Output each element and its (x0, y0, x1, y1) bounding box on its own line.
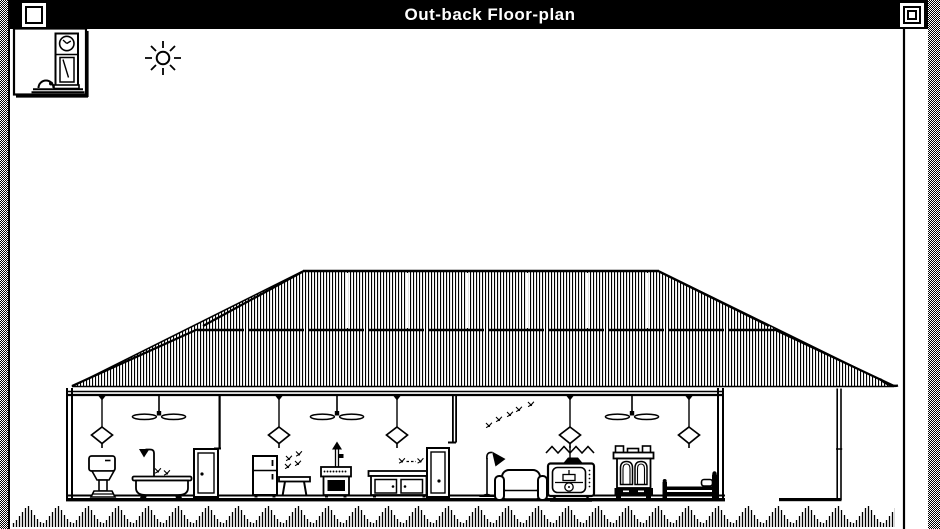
sink-cabinet (369, 458, 430, 497)
mouse-hole-icon (39, 81, 54, 89)
desktop-pattern: Out-back Floor-plan (0, 0, 940, 529)
zoom-box[interactable] (900, 3, 924, 27)
bedroom (614, 446, 718, 499)
living-room (479, 402, 594, 501)
close-box[interactable] (22, 3, 46, 27)
bathroom-kitchen-wall (219, 396, 221, 449)
fly-swarm (285, 451, 302, 468)
kitchen (253, 442, 449, 498)
lamp-shade (492, 452, 506, 467)
shower-head-icon (139, 449, 150, 458)
bathroom-door (194, 449, 218, 497)
grass (12, 504, 895, 528)
bathroom (89, 449, 218, 500)
fly-swarm (486, 402, 534, 428)
shower-pipe (146, 450, 155, 478)
left-wall (71, 388, 73, 501)
pillow (702, 480, 713, 487)
roof (72, 271, 898, 387)
fly-icon (155, 468, 161, 473)
ceiling-fixtures (92, 396, 700, 448)
couch (495, 470, 547, 500)
pendant-lamp (269, 396, 290, 448)
television (546, 446, 594, 501)
fly-icon (399, 458, 405, 463)
ceiling-fan (605, 396, 658, 420)
fridge (253, 456, 277, 498)
toilet (89, 456, 115, 497)
title-bar[interactable]: Out-back Floor-plan (10, 0, 928, 29)
kitchen-door (427, 448, 449, 497)
oven-door (328, 480, 346, 491)
side-table (279, 477, 310, 496)
left-wall (66, 388, 68, 501)
right-wall (717, 388, 719, 501)
door-knob (437, 479, 440, 482)
pendant-lamp (560, 396, 581, 448)
right-wall (722, 388, 724, 501)
bathtub (133, 449, 192, 500)
clock-picture (14, 29, 88, 98)
wood-stove (321, 442, 351, 498)
window-title: Out-back Floor-plan (405, 5, 576, 25)
pendant-lamp (679, 396, 700, 448)
document-window: Out-back Floor-plan (8, 0, 928, 529)
sun-icon (145, 41, 181, 75)
bed (663, 471, 718, 498)
pendant-lamp (387, 396, 408, 448)
floor-line (66, 498, 725, 501)
ceiling-fan (310, 396, 363, 420)
veranda-step (779, 498, 842, 501)
drawing-canvas[interactable] (10, 0, 930, 529)
pendant-lamp (92, 396, 113, 448)
door-knob (200, 472, 203, 475)
kitchen-living-wall (455, 396, 457, 443)
fly-icon (418, 458, 424, 463)
wardrobe (614, 446, 654, 498)
ceiling-fan (132, 396, 185, 420)
veranda-post (836, 389, 842, 501)
fly-icon (164, 470, 170, 475)
grandfather-clock-icon (54, 34, 79, 89)
kitchen-living-wall (452, 396, 454, 443)
